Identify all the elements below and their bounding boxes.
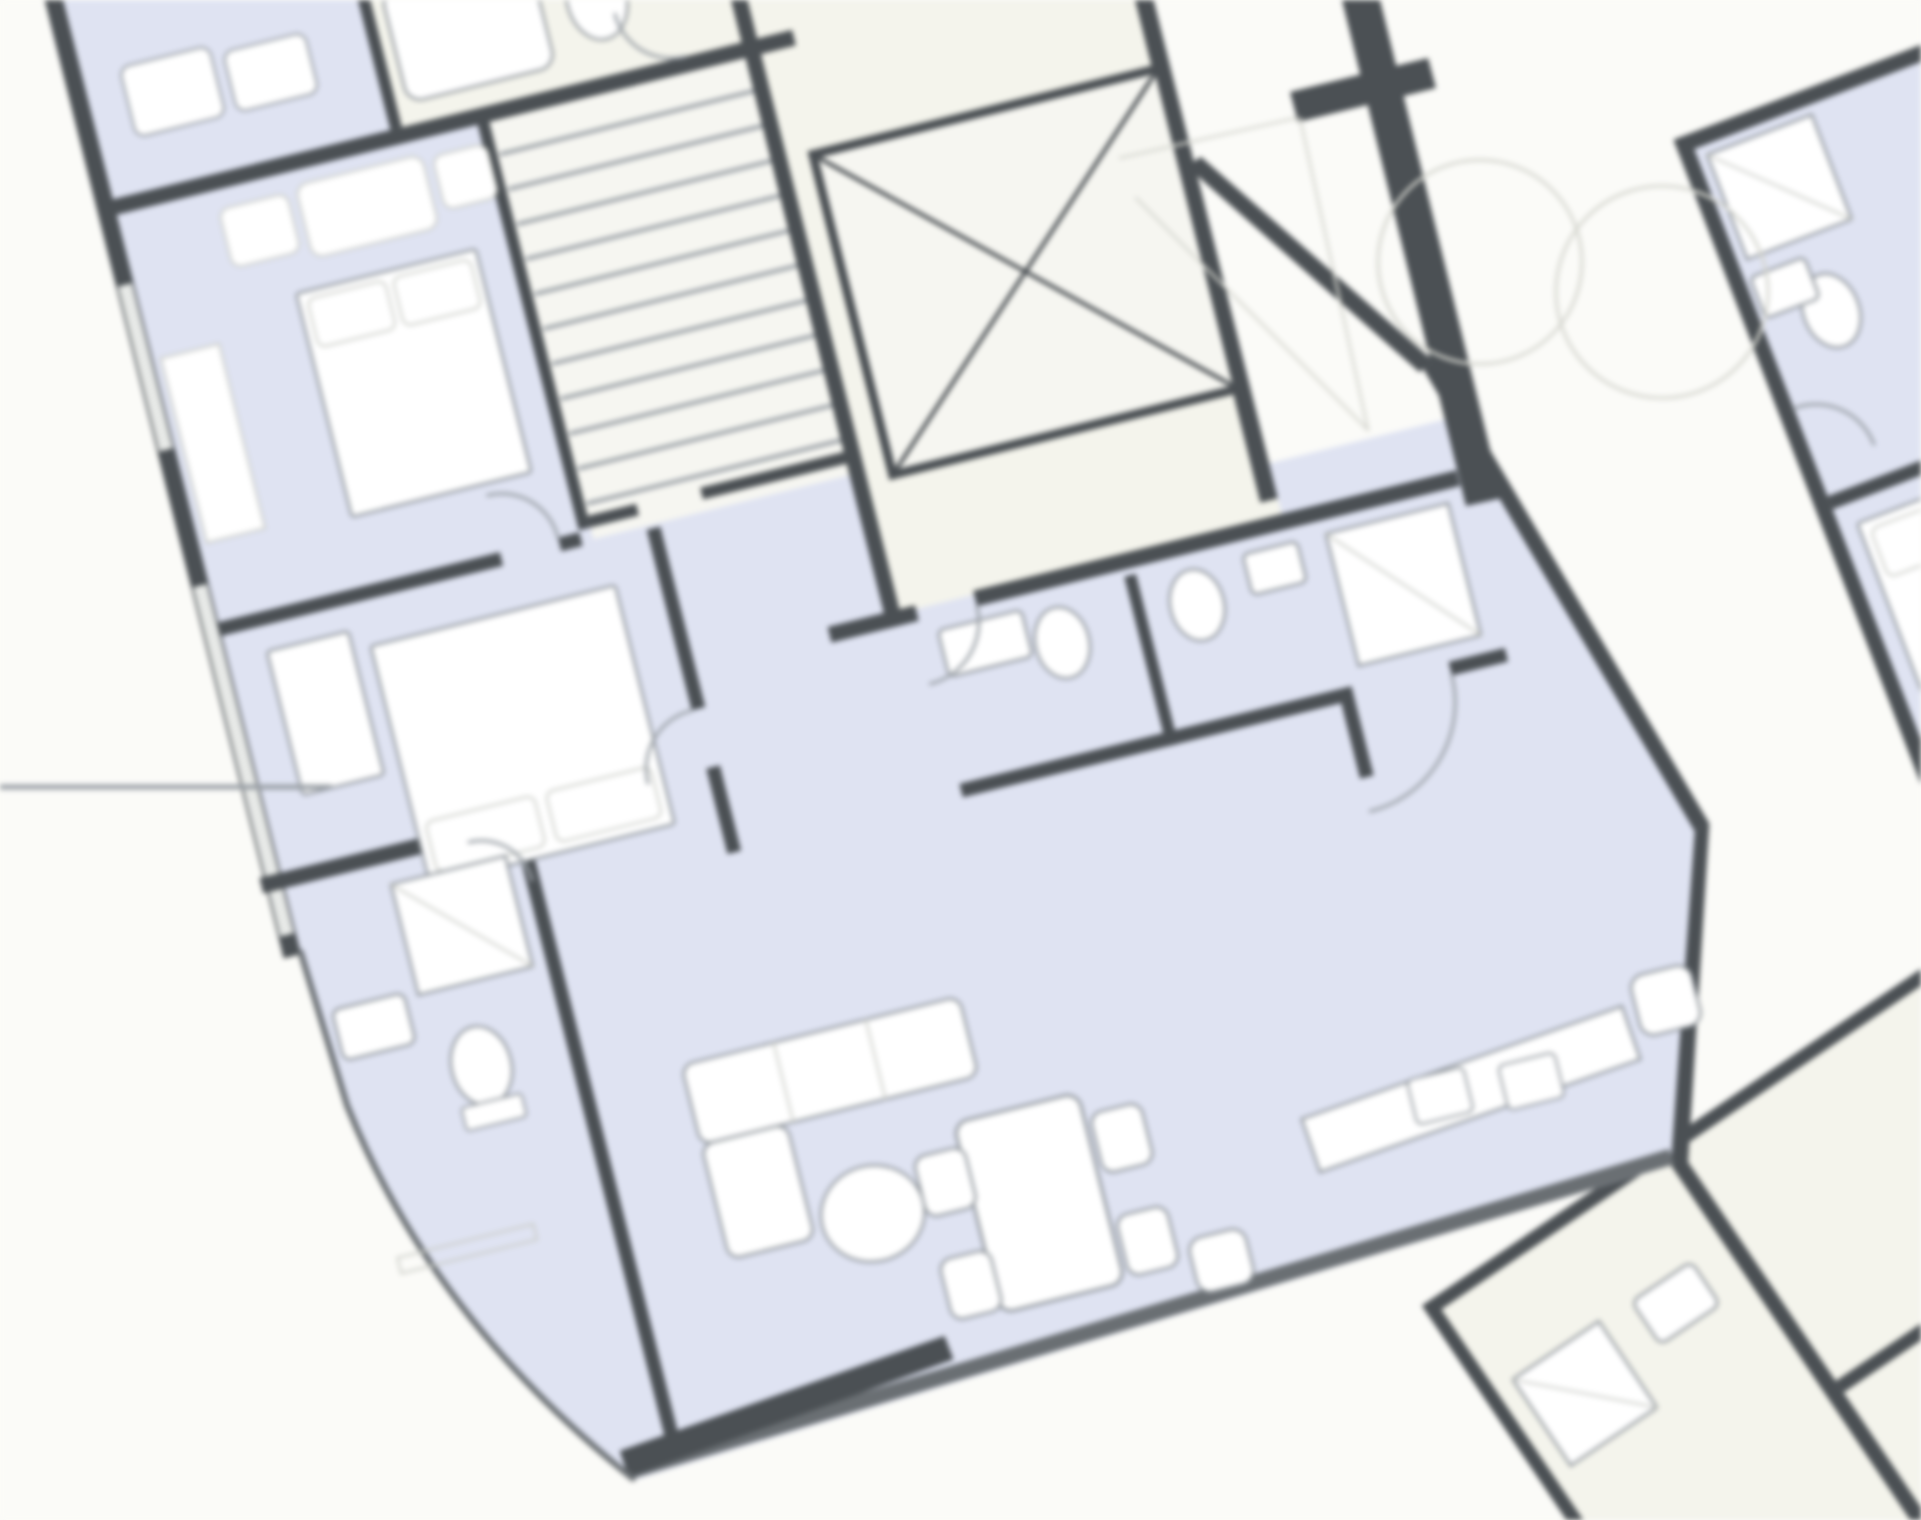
floor-plan-screenshot — [0, 0, 1921, 1520]
floor-plan-canvas — [0, 0, 1921, 1520]
headboard-blob-c — [432, 143, 499, 210]
kitchen-island-blob — [1628, 963, 1703, 1038]
